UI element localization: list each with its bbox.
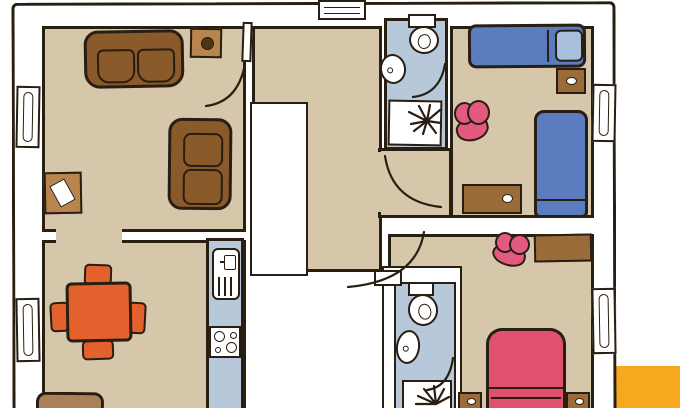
armchair-pink-top xyxy=(454,100,492,144)
living-room-door-leaf xyxy=(241,22,252,62)
window-left-upper xyxy=(15,86,40,148)
toilet-inner-oval xyxy=(417,303,433,321)
window-pane-line xyxy=(324,13,360,14)
burner-small xyxy=(230,332,237,339)
window-pane xyxy=(599,90,610,136)
toilet-inner-oval xyxy=(417,33,432,50)
dresser xyxy=(534,233,592,262)
nightstand-knob xyxy=(566,77,577,85)
dining-table xyxy=(65,281,132,342)
desk xyxy=(462,184,522,214)
burner-large xyxy=(226,342,237,353)
armchair-lobe xyxy=(467,100,490,125)
paper-sheet xyxy=(49,178,76,207)
nightstand-knob xyxy=(575,398,584,405)
window-pane xyxy=(23,304,34,356)
window-top xyxy=(318,0,366,20)
window-pane xyxy=(599,294,610,348)
sofa-vertical xyxy=(168,118,233,211)
stair-void xyxy=(250,102,308,276)
sofa-cushion xyxy=(183,169,223,205)
paper-table xyxy=(44,172,83,215)
window-left-lower xyxy=(15,298,40,362)
bed-pillow xyxy=(555,30,583,62)
sofa-cushion xyxy=(137,48,176,83)
window-pane xyxy=(23,92,34,142)
dining-chair-bottom xyxy=(82,339,115,360)
nightstand-bottom-right xyxy=(566,392,590,408)
single-bed-vertical xyxy=(534,110,588,218)
blanket-fold-line xyxy=(547,30,549,62)
double-bed xyxy=(486,328,566,408)
stove xyxy=(209,326,241,358)
kitchen-sink-unit xyxy=(212,248,240,300)
floor-plan-illustration xyxy=(0,0,680,408)
window-pane-line xyxy=(324,7,360,8)
living-dining-door-gap xyxy=(56,228,122,244)
side-table xyxy=(190,28,223,59)
single-bed-horizontal xyxy=(468,24,586,69)
vestibule-floor xyxy=(378,148,452,218)
nightstand-bottom-left xyxy=(458,392,482,408)
chair-lobe xyxy=(509,234,530,255)
hall-vestibule-seam xyxy=(376,152,385,212)
window-right-lower xyxy=(591,288,616,354)
footboard-line xyxy=(491,397,561,399)
sofa-cushion xyxy=(97,49,136,84)
sink-tap xyxy=(220,261,225,263)
yellow-corner-block xyxy=(616,366,680,408)
desk-knob xyxy=(502,194,513,203)
window-right-upper xyxy=(591,84,616,142)
footboard-line xyxy=(489,387,563,389)
basin-drain-dot xyxy=(402,345,409,352)
shower-tray-bottom xyxy=(402,380,452,408)
sink-basin xyxy=(224,255,236,270)
dining-rug xyxy=(36,392,104,408)
side-table-ring xyxy=(201,37,214,50)
nightstand-knob xyxy=(467,398,476,405)
basin-drain-dot xyxy=(387,67,394,74)
burner-large xyxy=(214,331,225,342)
drain-board-lines xyxy=(218,277,235,296)
sofa-horizontal xyxy=(84,29,185,89)
entry-door-post xyxy=(374,270,402,286)
shower-tray-top xyxy=(388,100,443,147)
footboard-line xyxy=(537,199,585,201)
chair-pink-bottom xyxy=(492,232,532,268)
sofa-cushion xyxy=(183,133,223,167)
burner-small xyxy=(215,347,221,353)
nightstand-top xyxy=(556,68,586,94)
